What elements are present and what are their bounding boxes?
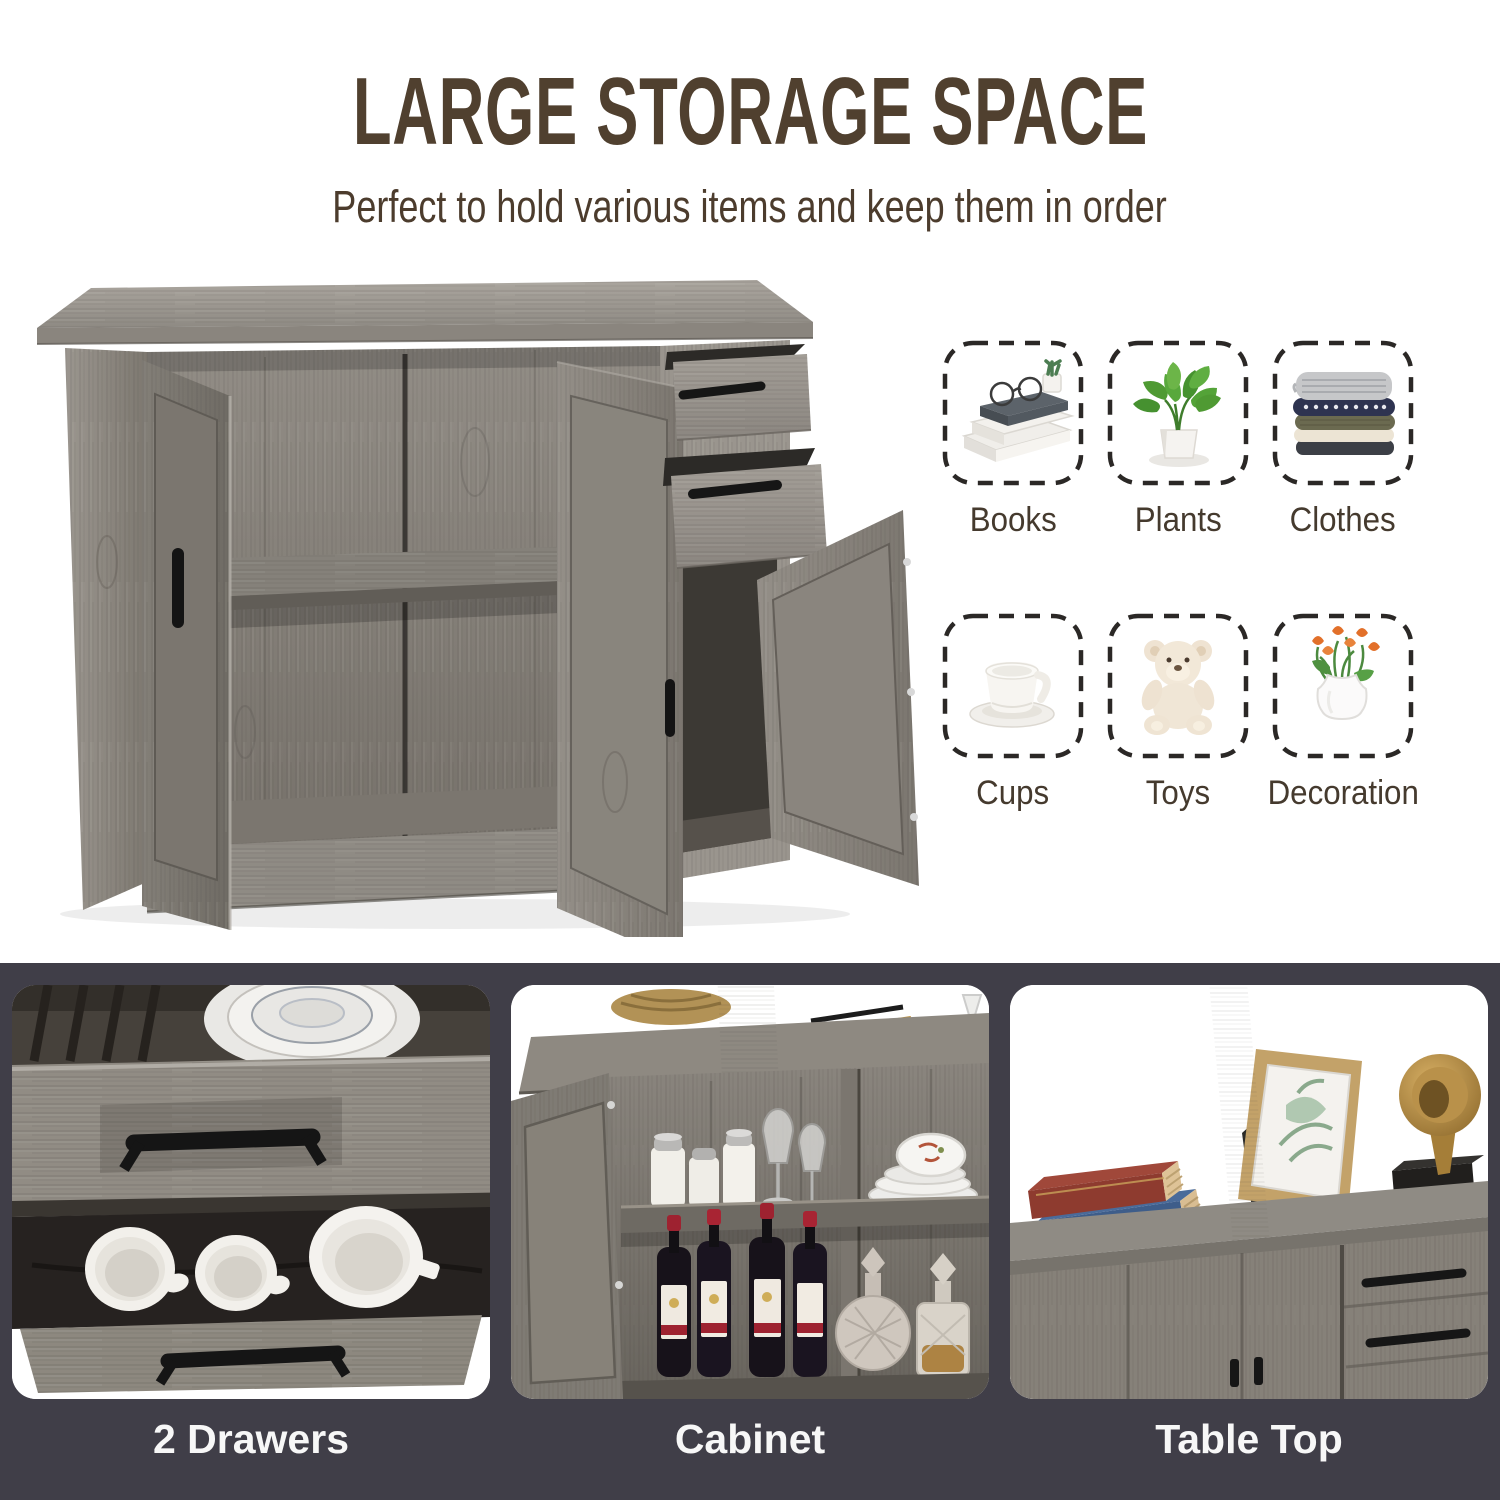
storage-item-cups: Cups — [940, 611, 1086, 814]
top-drawer-open — [665, 344, 811, 440]
tabletop-photo — [1010, 985, 1488, 1399]
page-title: LARGE STORAGE SPACE — [0, 64, 1500, 160]
cabinet-photo — [511, 985, 989, 1399]
hinge-dot — [910, 813, 918, 821]
storage-item-label: Cups — [976, 773, 1049, 814]
shaker — [689, 1148, 719, 1207]
drawers-photo-panel — [12, 985, 490, 1399]
storage-item-clothes: Clothes — [1270, 338, 1416, 541]
sideboard-illustration — [15, 262, 925, 937]
caption-cabinet: Cabinet — [511, 1419, 989, 1460]
drawer-handle — [168, 1353, 338, 1361]
second-drawer-open — [663, 448, 827, 568]
storage-item-toys: Toys — [1105, 611, 1251, 814]
books-icon — [940, 338, 1086, 488]
shaker — [723, 1129, 755, 1207]
storage-item-label: Books — [970, 500, 1057, 541]
middle-door-open — [557, 362, 683, 937]
left-door-open — [142, 360, 230, 930]
open-door-left — [511, 1073, 623, 1399]
storage-item-label: Plants — [1135, 500, 1222, 541]
storage-items-grid: Books Plan — [940, 338, 1460, 814]
hinge-dot — [907, 688, 915, 696]
hero-cabinet-image — [15, 262, 925, 937]
cabinet-left-side — [65, 348, 147, 910]
plants-icon — [1105, 338, 1251, 488]
caption-2-drawers: 2 Drawers — [12, 1419, 490, 1460]
cups-icon — [940, 611, 1086, 761]
tabletop-photo-panel — [1010, 985, 1488, 1399]
drawer-handle — [134, 1137, 312, 1143]
page-subtitle: Perfect to hold various items and keep t… — [0, 184, 1500, 229]
caption-table-top: Table Top — [1010, 1419, 1488, 1460]
storage-item-decoration: Decoration — [1270, 611, 1416, 814]
header: LARGE STORAGE SPACE Perfect to hold vari… — [0, 0, 1500, 229]
toys-icon — [1105, 611, 1251, 761]
hinge-dot — [903, 558, 911, 566]
clothes-icon — [1270, 338, 1416, 488]
storage-item-label: Toys — [1146, 773, 1210, 814]
cabinet-top — [37, 280, 813, 344]
product-infographic: LARGE STORAGE SPACE Perfect to hold vari… — [0, 0, 1500, 1500]
top-drawer-front — [12, 1055, 490, 1203]
decoration-icon — [1270, 611, 1416, 761]
storage-item-books: Books — [940, 338, 1086, 541]
storage-item-label: Decoration — [1267, 773, 1418, 814]
shaker — [651, 1133, 685, 1207]
storage-item-label: Clothes — [1290, 500, 1396, 541]
cabinet-photo-panel — [511, 985, 989, 1399]
drawers-photo — [12, 985, 490, 1399]
storage-item-plants: Plants — [1105, 338, 1251, 541]
door-handle — [1254, 1357, 1263, 1385]
door-handle — [1230, 1359, 1239, 1387]
lower-drawer-interior — [12, 1206, 490, 1329]
feature-strip: 2 Drawers Cabinet Table Top — [0, 963, 1500, 1500]
